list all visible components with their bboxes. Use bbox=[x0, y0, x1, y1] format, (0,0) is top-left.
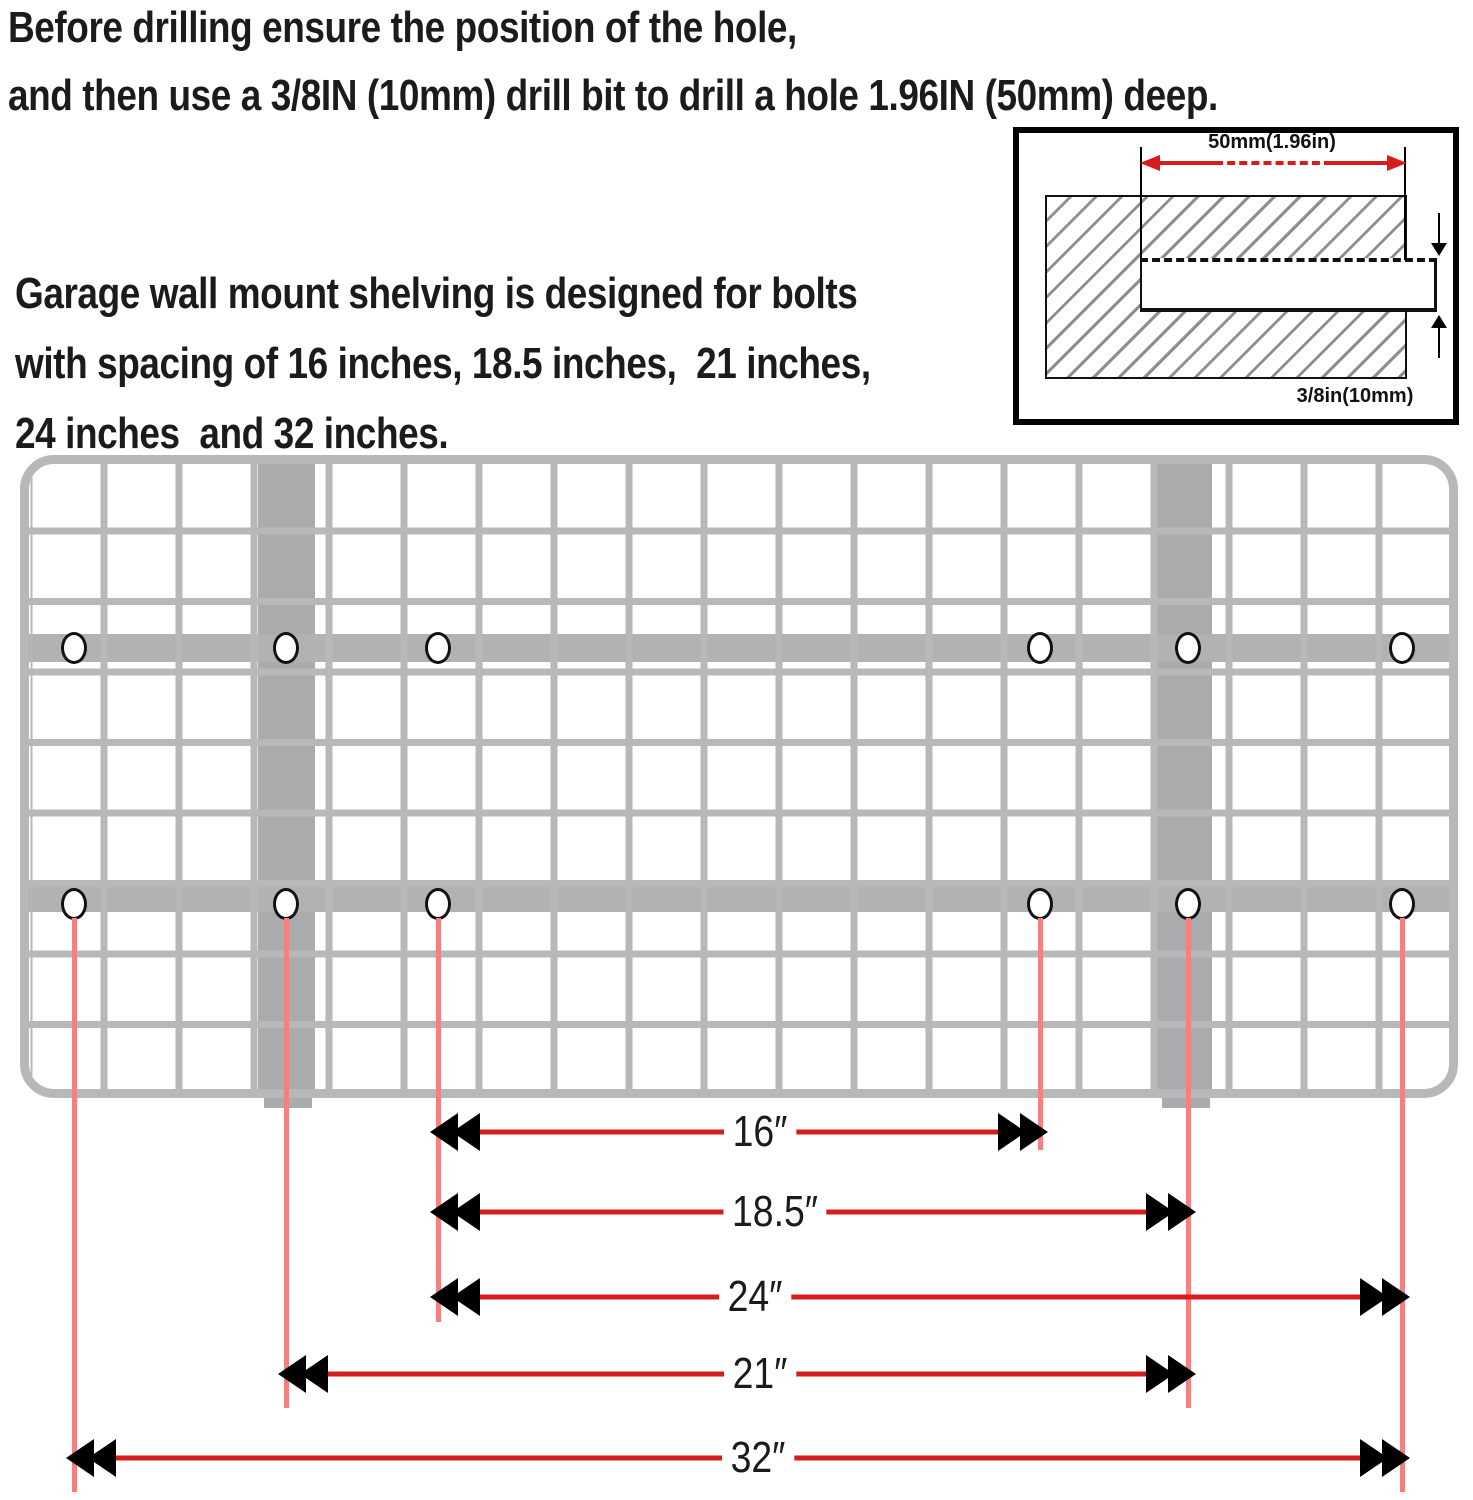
installation-instructions-page: Before drilling ensure the position of t… bbox=[0, 0, 1473, 1500]
note-line-1: Garage wall mount shelving is designed f… bbox=[15, 270, 857, 318]
extension-line bbox=[284, 918, 289, 1408]
drilled-hole bbox=[1140, 258, 1437, 312]
intro-line-1: Before drilling ensure the position of t… bbox=[8, 4, 797, 52]
extension-line bbox=[1186, 918, 1191, 1408]
dimension-line-segment bbox=[1160, 161, 1215, 165]
mount-hole bbox=[273, 632, 299, 664]
dimension-arrow bbox=[428, 1275, 1412, 1319]
dimension-line-segment bbox=[1332, 161, 1387, 165]
arrowhead-right bbox=[1387, 155, 1407, 171]
dimension-label: 16″ bbox=[724, 1109, 796, 1155]
arrowhead-down bbox=[1431, 243, 1447, 256]
arrow-stem bbox=[1438, 213, 1440, 243]
wire-grid-shelf bbox=[20, 455, 1458, 1098]
intro-line-2: and then use a 3/8IN (10mm) drill bit to… bbox=[8, 72, 1218, 120]
mount-hole bbox=[1175, 888, 1201, 920]
note-line-3: 24 inches and 32 inches. bbox=[15, 410, 448, 458]
extension-line bbox=[72, 918, 77, 1492]
hole-depth-label: 50mm(1.96in) bbox=[1208, 131, 1336, 154]
dimension-row-18-5: 18.5″ bbox=[428, 1190, 1198, 1234]
mount-hole bbox=[61, 888, 87, 920]
dimension-label: 24″ bbox=[719, 1274, 791, 1320]
diameter-arrow-up bbox=[1431, 315, 1447, 360]
wire-grid bbox=[29, 464, 1449, 1089]
drill-bit-size-label: 3/8in(10mm) bbox=[1297, 385, 1414, 408]
dimension-label: 18.5″ bbox=[723, 1189, 826, 1235]
mount-hole bbox=[1389, 632, 1415, 664]
dimension-row-16: 16″ bbox=[428, 1110, 1050, 1154]
mount-hole bbox=[425, 888, 451, 920]
arrowhead-left bbox=[1140, 155, 1160, 171]
mount-hole bbox=[1175, 632, 1201, 664]
extension-line bbox=[1400, 918, 1405, 1492]
mount-hole bbox=[425, 632, 451, 664]
drill-hole-diagram: 50mm(1.96in) 3/8in(10mm) bbox=[1013, 127, 1459, 425]
note-line-2: with spacing of 16 inches, 18.5 inches, … bbox=[15, 340, 871, 388]
dimension-row-21: 21″ bbox=[276, 1352, 1198, 1396]
mount-hole bbox=[1027, 888, 1053, 920]
dimension-label: 21″ bbox=[724, 1351, 796, 1397]
mount-hole bbox=[1389, 888, 1415, 920]
dimension-label: 32″ bbox=[722, 1435, 794, 1481]
mount-hole bbox=[273, 888, 299, 920]
diameter-arrow-down bbox=[1431, 213, 1447, 258]
mount-hole bbox=[1027, 632, 1053, 664]
dimension-row-32: 32″ bbox=[64, 1436, 1412, 1480]
dimension-line-dashed-segment bbox=[1215, 161, 1332, 165]
depth-dimension-arrow bbox=[1140, 155, 1407, 171]
arrow-stem bbox=[1438, 328, 1440, 358]
dimension-row-24: 24″ bbox=[428, 1275, 1412, 1319]
mount-hole bbox=[61, 632, 87, 664]
arrowhead-up bbox=[1431, 315, 1447, 328]
